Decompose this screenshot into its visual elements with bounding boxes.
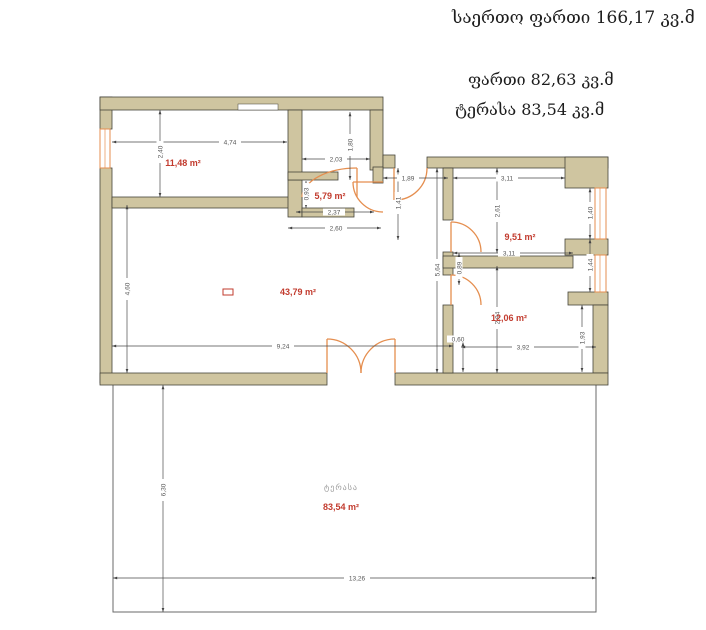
door-arc bbox=[451, 222, 481, 252]
wall-segment bbox=[383, 155, 395, 168]
dim-label: 1,40 bbox=[588, 206, 595, 219]
dim-label: 6,30 bbox=[161, 483, 168, 496]
door-arc bbox=[327, 339, 361, 373]
wall-segment bbox=[565, 157, 608, 188]
total-area-text: საერთო ფართი 166,17 კვ.მ bbox=[452, 8, 695, 28]
door-arc bbox=[361, 339, 395, 373]
wall-notch bbox=[238, 104, 278, 110]
terrace-area-text: ტერასა 83,54 კვ.მ bbox=[455, 100, 604, 119]
dim-label: 4,74 bbox=[224, 140, 237, 147]
room-area-label: 12,06 m² bbox=[491, 313, 527, 323]
room-area-label: 9,51 m² bbox=[504, 232, 535, 242]
dim-label: 2,03 bbox=[330, 157, 343, 164]
dim-label: 2,40 bbox=[158, 145, 165, 158]
wall-segment bbox=[288, 180, 302, 217]
dim-label: 3,11 bbox=[503, 251, 516, 258]
dimension-lines bbox=[112, 110, 596, 612]
dim-label: 2,61 bbox=[495, 204, 502, 217]
dim-label: 1,80 bbox=[348, 138, 355, 151]
dim-label: 3,11 bbox=[501, 176, 514, 183]
wall-segment bbox=[565, 239, 608, 255]
dim-label: 13,26 bbox=[349, 576, 366, 583]
room-area-label: 5,79 m² bbox=[314, 191, 345, 201]
column-symbol bbox=[223, 289, 233, 295]
dim-label: 2,37 bbox=[328, 210, 341, 217]
door-arc bbox=[451, 275, 481, 305]
wall-segment bbox=[288, 110, 302, 180]
window bbox=[595, 255, 606, 292]
window bbox=[595, 188, 606, 239]
dim-label: 2,60 bbox=[330, 226, 343, 233]
wall-segment bbox=[443, 168, 453, 220]
wall-segment bbox=[112, 197, 302, 208]
dim-label: 5,64 bbox=[435, 263, 442, 276]
floor-plan-drawing: 4,74 2,03 2,37 2,60 1,89 3,11 3,11 9,24 … bbox=[0, 0, 706, 630]
wall-segment bbox=[373, 167, 383, 183]
inner-area-text: ფართი 82,63 კვ.მ bbox=[468, 70, 614, 89]
wall-segment bbox=[100, 373, 327, 385]
dim-label: 3,92 bbox=[517, 345, 530, 352]
dim-label: 1,93 bbox=[580, 331, 587, 344]
dim-label: 1,44 bbox=[588, 258, 595, 271]
room-area-label: 11,48 m² bbox=[165, 158, 201, 168]
dim-label: 1,89 bbox=[402, 176, 415, 183]
dim-label: 0,60 bbox=[452, 337, 465, 344]
wall-segment bbox=[395, 373, 608, 385]
wall-segment bbox=[370, 110, 383, 170]
wall-segment bbox=[568, 292, 608, 305]
wall-segment bbox=[100, 168, 112, 383]
dim-label: 0,89 bbox=[457, 261, 464, 274]
wall-segment bbox=[593, 305, 608, 373]
dim-label: 4,60 bbox=[125, 282, 132, 295]
dim-label: 9,24 bbox=[277, 344, 290, 351]
terrace-area-label: 83,54 m² bbox=[323, 502, 359, 512]
dim-label: 1,41 bbox=[396, 196, 403, 209]
floor-plan-page: საერთო ფართი 166,17 კვ.მ ფართი 82,63 კვ.… bbox=[0, 0, 706, 630]
dim-label: 0,93 bbox=[304, 187, 311, 200]
wall-segment bbox=[288, 172, 338, 180]
room-area-label: 43,79 m² bbox=[280, 287, 316, 297]
terrace-name-label: ტერასა bbox=[324, 483, 358, 492]
